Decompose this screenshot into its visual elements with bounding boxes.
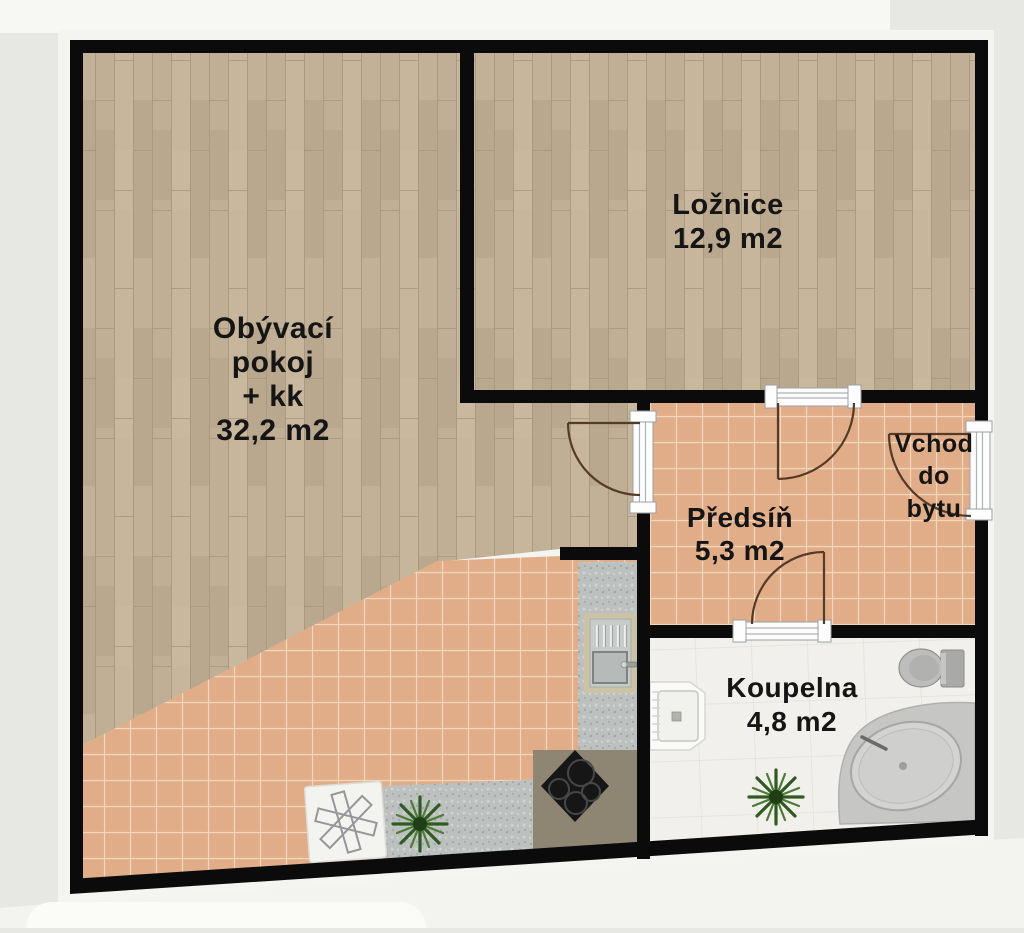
entrance-label-line1: Vchod bbox=[895, 430, 974, 458]
bedroom-area: 12,9 m2 bbox=[673, 223, 783, 255]
floor-plan-svg: Obývací pokoj + kk 32,2 m2 Ložnice 12,9 … bbox=[0, 0, 1024, 928]
door-frame-hallway-bathroom bbox=[733, 620, 831, 642]
bathroom-label-line1: Koupelna bbox=[726, 672, 858, 703]
wall-bedroom-south-right bbox=[858, 390, 975, 403]
bathroom-plant-icon bbox=[749, 770, 803, 824]
wall-right-upper bbox=[975, 40, 988, 428]
entrance-label-line3: bytu bbox=[907, 495, 962, 523]
wall-right-lower bbox=[975, 516, 988, 836]
floors bbox=[83, 53, 975, 880]
bathroom-area: 4,8 m2 bbox=[747, 706, 837, 737]
kitchen-plant-icon bbox=[393, 797, 447, 851]
bedroom-label-line1: Ložnice bbox=[672, 189, 783, 221]
hallway-label-line1: Předsíň bbox=[687, 502, 793, 533]
door-frame-bedroom-hallway bbox=[765, 385, 861, 408]
living-room-label-line3: + kk bbox=[242, 380, 303, 413]
bedroom-floor bbox=[474, 53, 975, 390]
living-room-area: 32,2 m2 bbox=[216, 414, 330, 447]
toilet bbox=[899, 649, 964, 687]
hallway-area: 5,3 m2 bbox=[695, 535, 785, 566]
background-top-strip bbox=[0, 0, 890, 33]
wall-left bbox=[70, 40, 83, 893]
wall-bathroom-north-right bbox=[830, 625, 975, 638]
wall-bedroom-south-left bbox=[460, 390, 770, 403]
washbasin bbox=[650, 682, 705, 750]
wall-bedroom-divider bbox=[460, 53, 474, 392]
living-room-label-line1: Obývací bbox=[213, 312, 334, 345]
wall-top bbox=[70, 40, 988, 53]
door-frame-living-hallway bbox=[630, 411, 656, 513]
wall-kitchen-stub bbox=[560, 547, 650, 560]
rug-with-asterisk bbox=[304, 781, 386, 862]
entrance-label-line2: do bbox=[918, 462, 950, 490]
kitchen-sink bbox=[584, 613, 637, 693]
floor-plan-page: Obývací pokoj + kk 32,2 m2 Ložnice 12,9 … bbox=[0, 0, 1024, 928]
background-bottom-artifact bbox=[26, 902, 426, 928]
living-room-label-line2: pokoj bbox=[232, 346, 315, 379]
bathtub-drain bbox=[899, 762, 907, 770]
wall-bathroom-north-left bbox=[650, 625, 738, 638]
